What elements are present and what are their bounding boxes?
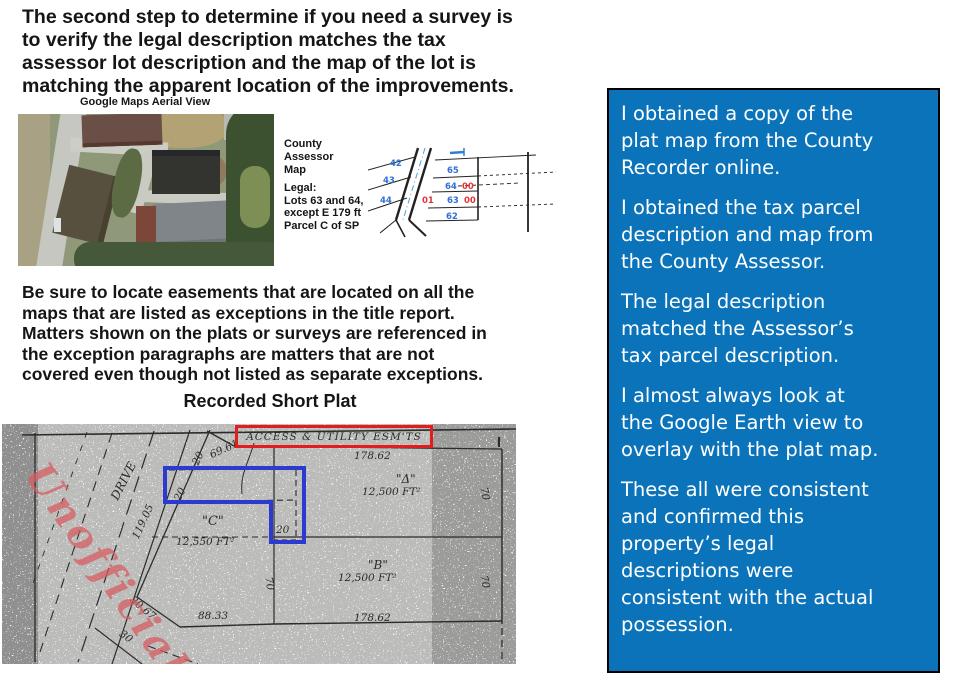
aerial-photo-caption: Google Maps Aerial View [80,96,210,108]
lot-number-62: 62 [446,212,458,222]
house-center-roof [152,150,220,194]
lot-number-63: 63 [447,196,459,206]
assessor-map-sketch: 42 43 44 65 64 63 62 00 01 00 [368,140,558,240]
aerial-photo-image [18,114,274,266]
trees-bottom [74,242,274,266]
note-legal-matched: The legal description matched the Assess… [621,288,926,369]
plat-title: Recorded Short Plat [40,391,500,412]
note-consistent: These all were consistent and confirmed … [621,476,926,638]
easements-note: Be sure to locate easements that are loc… [22,282,582,385]
house-top-roof [81,114,162,147]
car-white [54,218,61,232]
notes-panel: I obtained a copy of the plat map from t… [607,88,940,673]
lot-number-65: 65 [447,166,459,176]
lot-number-42: 42 [390,159,402,169]
slide: The second step to determine if you need… [0,0,974,700]
assessor-map-title: County Assessor Map [284,138,374,177]
lot-number-44: 44 [380,196,392,206]
lot-number-64: 64 [445,182,457,192]
lot-number-43: 43 [383,176,395,186]
code-00-upper: 00 [462,182,474,192]
recorded-short-plat-image: 69.61 20 20 178.62 "Δ" 12,500 FT² 70 119… [2,424,516,664]
note-google-earth: I almost always look at the Google Earth… [621,382,926,463]
note-plat-map: I obtained a copy of the plat map from t… [621,100,926,181]
note-tax-parcel: I obtained the tax parcel description an… [621,194,926,275]
code-01: 01 [422,196,434,206]
house-lower-wing [136,206,156,246]
lawn-right [240,166,270,228]
code-00-lower: 00 [464,196,476,206]
intro-text: The second step to determine if you need… [22,6,582,98]
